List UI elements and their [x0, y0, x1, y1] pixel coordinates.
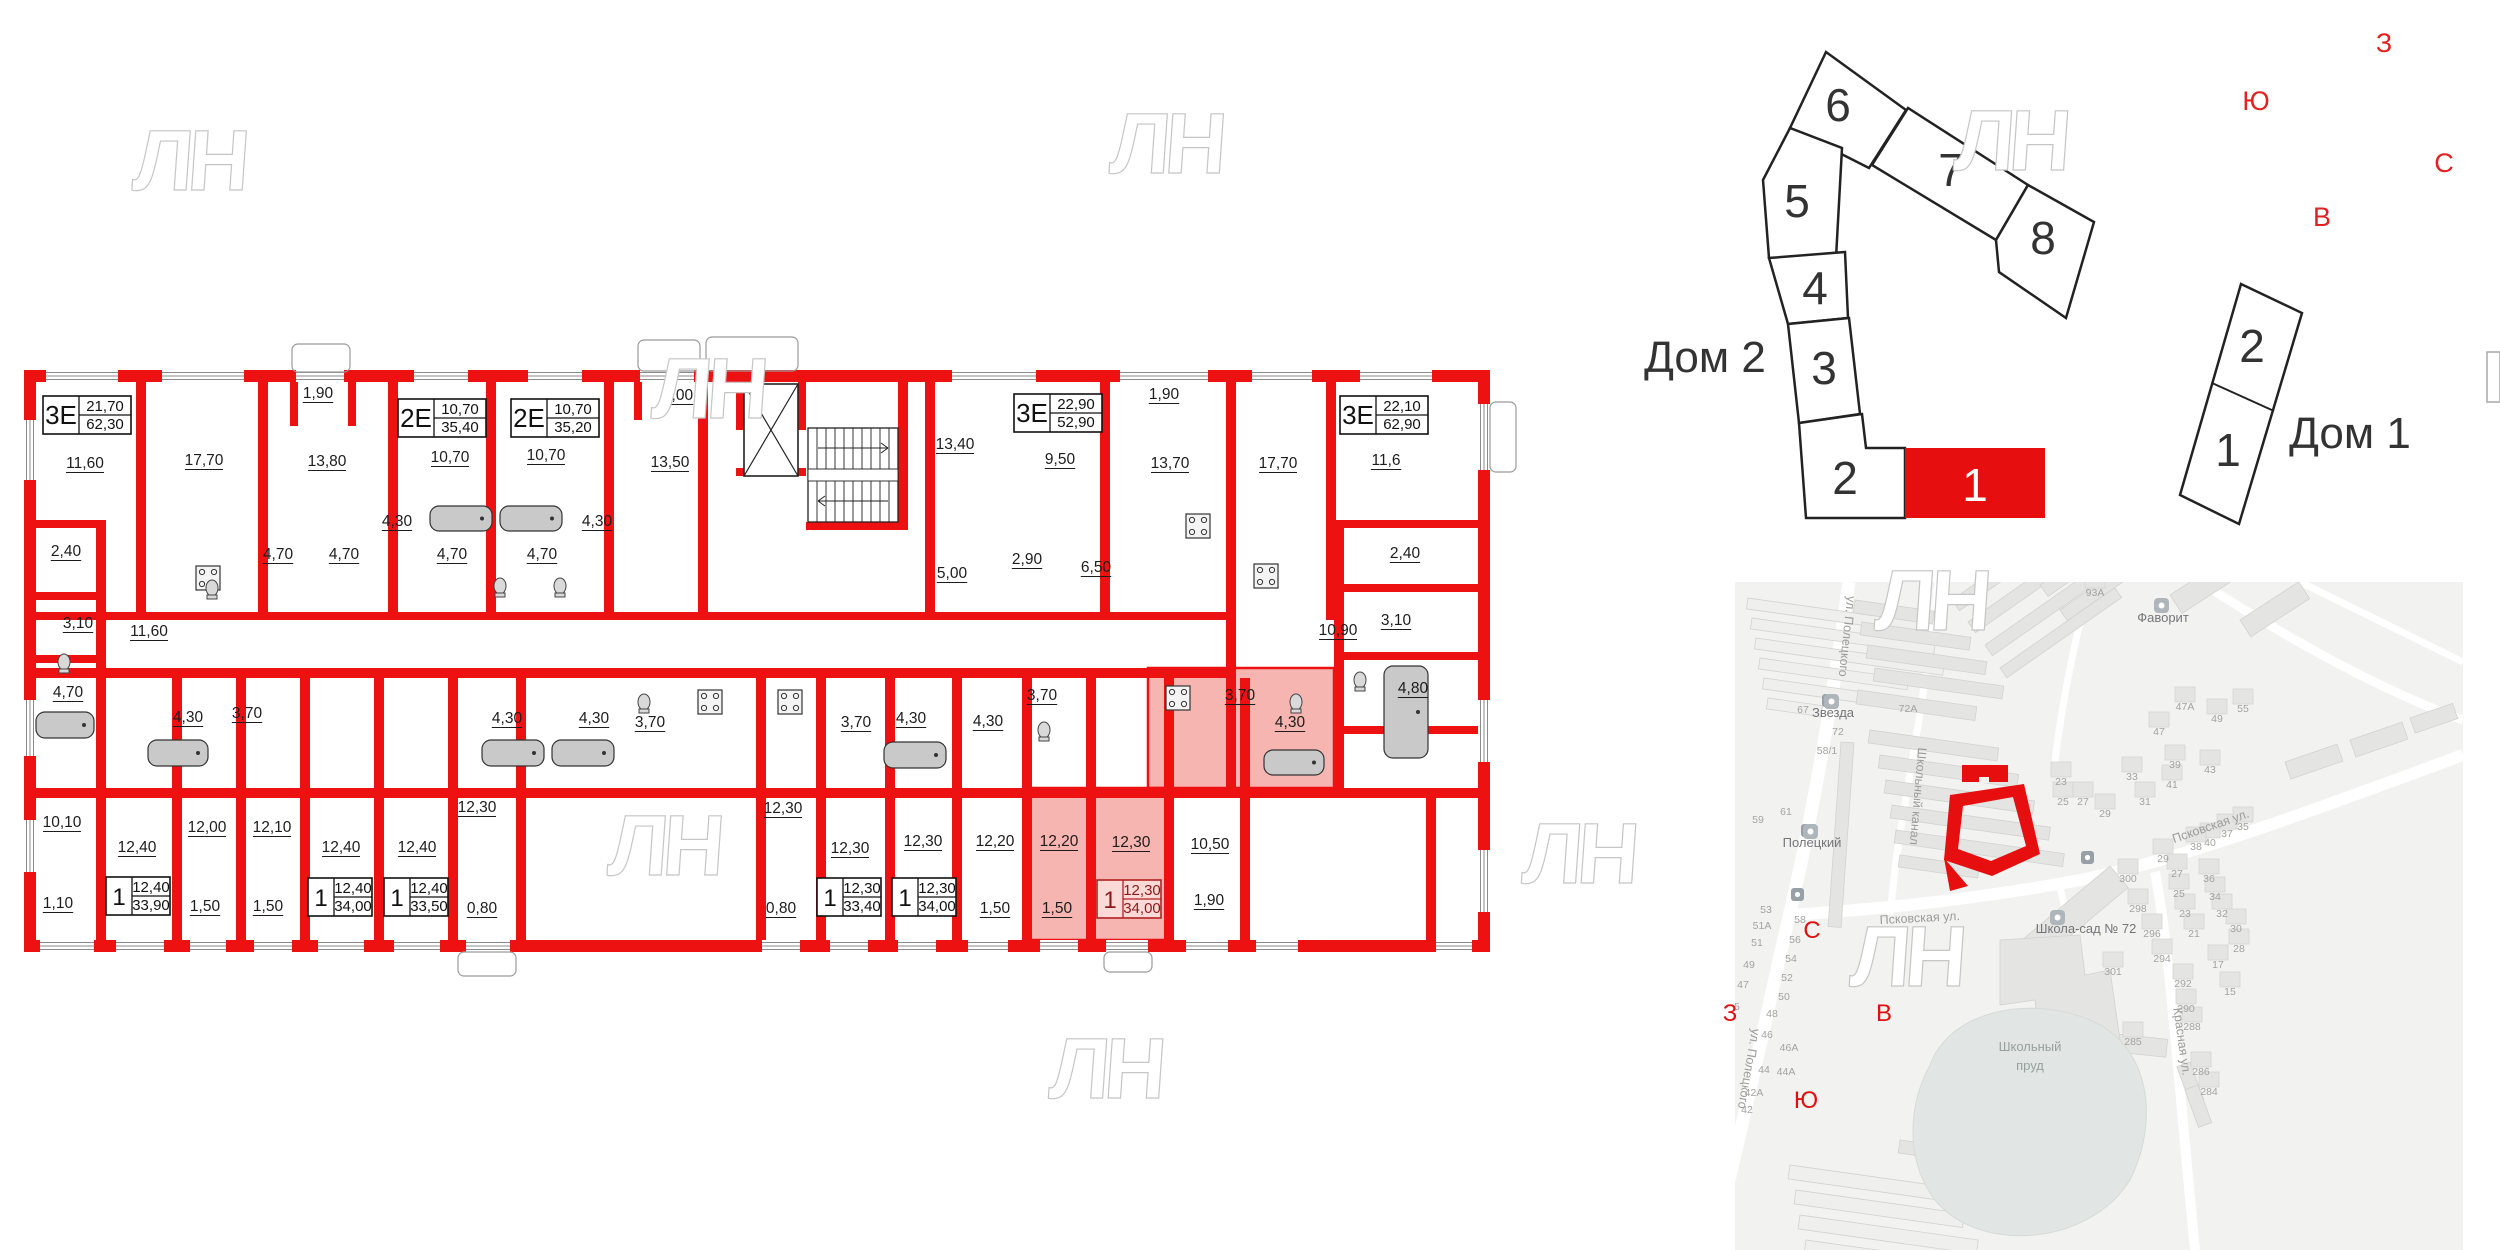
map-building [2051, 762, 2071, 777]
room-area-label: 9,50 [1045, 451, 1076, 468]
room-area-label: 12,40 [322, 839, 361, 856]
stove [1186, 514, 1210, 538]
apartment-info-box[interactable]: 112,3033,40 [817, 878, 881, 916]
apartment-type: 1 [1103, 887, 1116, 914]
house-number: 58/1 [1817, 745, 1838, 757]
house-number: 41 [2166, 779, 2178, 791]
map-building [2128, 889, 2148, 904]
map-building [2173, 964, 2193, 979]
apartment-info-box[interactable]: 3Е21,7062,30 [43, 396, 131, 434]
room-area-label: 17,70 [185, 452, 224, 469]
house-number: 38 [2190, 841, 2202, 853]
house-number: 17 [2212, 959, 2224, 971]
room-area-label: 12,10 [253, 819, 292, 836]
house-number: 21 [2188, 928, 2200, 940]
apartment-room-area: 12,40 [132, 879, 170, 896]
house-number: 292 [2174, 978, 2192, 990]
room-area-label: 4,30 [582, 513, 613, 530]
compass-top-east: В [2313, 202, 2331, 232]
house-number: 93А [2086, 587, 2105, 599]
stove [778, 690, 802, 714]
apartment-type: 3Е [45, 400, 77, 430]
room-area-label: 2,40 [51, 543, 82, 560]
wall [1426, 788, 1436, 950]
wall [898, 372, 908, 530]
compass-top-north: С [2434, 148, 2454, 178]
wall [24, 612, 1236, 620]
map-building [2200, 750, 2220, 765]
developer-watermark: ЛН [605, 798, 723, 894]
apartment-info-box[interactable]: 2Е10,7035,40 [398, 399, 486, 437]
house-number: 28 [2233, 943, 2245, 955]
house-number: 300 [2119, 873, 2137, 885]
compass-map-south: Ю [1794, 1087, 1818, 1114]
house-number: 47А [2176, 701, 2195, 713]
map-building [2191, 1052, 2211, 1067]
room-area-label: 4,80 [1398, 680, 1429, 697]
wall [1342, 520, 1478, 528]
wall [1240, 678, 1250, 948]
apartment-info-box[interactable]: 112,3034,00 [892, 878, 956, 916]
stove [1254, 564, 1278, 588]
house-number: 46А [1780, 1042, 1799, 1054]
map-building [2175, 687, 2195, 702]
house-number: 51 [1751, 937, 1763, 949]
toilet [58, 654, 70, 670]
house-number: 29 [2099, 808, 2111, 820]
developer-watermark: ЛН [1520, 806, 1638, 902]
apartment-room-area: 12,30 [1123, 882, 1161, 899]
wall [96, 520, 106, 676]
apartment-info-box[interactable]: 112,4033,90 [106, 877, 170, 915]
apartment-total-area: 34,00 [1123, 900, 1161, 917]
scheme-block-number[interactable]: 3 [1811, 342, 1837, 394]
house-number: 51А [1753, 920, 1772, 932]
apartment-type: 1 [112, 884, 125, 911]
room-area-label: 1,90 [303, 385, 334, 402]
toilet [1354, 672, 1366, 688]
room-area-label: 3,70 [1027, 687, 1058, 704]
room-area-label: 1,50 [253, 898, 284, 915]
room-area-label: 12,30 [831, 840, 870, 857]
wall [258, 372, 268, 620]
wall [1226, 372, 1236, 620]
apartment-total-area: 33,50 [410, 898, 448, 915]
room-area-label: 5,00 [937, 565, 968, 582]
room-area-label: 4,70 [329, 546, 360, 563]
house-number: 44А [1777, 1066, 1796, 1078]
apartment-room-area: 22,90 [1057, 396, 1095, 413]
map-building [2103, 952, 2123, 967]
room-area-label: 11,6 [1371, 452, 1400, 469]
pond-label-line1: Школьный [1999, 1039, 2062, 1054]
balcony-outline [292, 344, 350, 372]
room-area-label: 4,30 [382, 513, 413, 530]
apartment-room-area: 21,70 [86, 398, 124, 415]
apartment-info-box[interactable]: 3Е22,1062,90 [1340, 396, 1428, 434]
toilet [1290, 694, 1302, 710]
room-area-label: 12,20 [1040, 833, 1079, 850]
house-number: 56 [1789, 934, 1801, 946]
house-number: 25 [2057, 796, 2069, 808]
room-area-label: 11,60 [66, 455, 104, 472]
dom2-label: Дом 2 [1644, 333, 1766, 382]
floor-plan: 11,6017,701,9013,8010,7010,702,0013,5013… [24, 337, 1516, 976]
compass-top-south: Ю [2242, 86, 2269, 116]
apartment-type: 1 [898, 885, 911, 912]
house-number: 290 [2177, 1003, 2195, 1015]
staircase [808, 428, 898, 522]
room-area-label: 4,30 [1275, 714, 1306, 731]
room-area-label: 4,30 [973, 713, 1004, 730]
room-area-label: 3,70 [232, 705, 263, 722]
house-number: 55 [2237, 703, 2249, 715]
room-area-label: 4,70 [437, 546, 468, 563]
wall [925, 372, 935, 620]
map-building [2142, 914, 2162, 929]
map-building [2153, 839, 2173, 854]
poi-label: Полецкий [1783, 835, 1842, 850]
wall [448, 678, 458, 948]
poi-label: Школа-сад № 72 [2036, 921, 2137, 936]
apartment-info-box[interactable]: 3Е22,9052,90 [1014, 394, 1102, 432]
apartment-total-area: 62,90 [1383, 416, 1421, 433]
house-number: 33 [2126, 771, 2138, 783]
wall [1022, 678, 1032, 948]
house-number: 47 [2153, 726, 2165, 738]
house-number: 61 [1780, 806, 1792, 818]
map-building [2122, 757, 2142, 772]
wall [604, 372, 614, 620]
map-building [2085, 573, 2105, 588]
toilet [638, 694, 650, 710]
house-number: 27 [2077, 796, 2089, 808]
map-building [2073, 782, 2093, 797]
map-building [2152, 939, 2172, 954]
house-number: 23 [2055, 776, 2067, 788]
apartment-total-area: 35,20 [554, 419, 592, 436]
room-area-label: 1,50 [980, 900, 1011, 917]
house-number: 285 [2124, 1036, 2142, 1048]
room-area-label: 10,10 [43, 814, 82, 831]
room-area-label: 3,70 [635, 714, 666, 731]
apartment-room-area: 10,70 [554, 401, 592, 418]
room-area-label: 12,30 [764, 800, 803, 817]
house-number: 29 [2157, 853, 2169, 865]
room-area-label: 4,30 [896, 710, 927, 727]
room-area-label: 1,90 [1194, 892, 1225, 909]
house-number: 49 [1743, 959, 1755, 971]
wall [24, 668, 1236, 678]
toilet [206, 580, 218, 596]
map-building [2135, 782, 2155, 797]
wall [798, 372, 806, 430]
house-number: 53 [1760, 904, 1772, 916]
house-number: 39 [2169, 759, 2181, 771]
house-number: 47 [1737, 979, 1749, 991]
room-area-label: 6,50 [1081, 559, 1112, 576]
map-content: ул. ПолецкогоШкольный каналПсковская ул.… [1712, 514, 2463, 1250]
apartment-type: 2Е [400, 403, 432, 433]
room-area-label: 13,40 [936, 436, 975, 453]
wall [24, 592, 104, 600]
developer-watermark: ЛН [649, 341, 767, 437]
apartment-room-area: 12,30 [843, 880, 881, 897]
compass-map-north: С [1803, 917, 1820, 944]
apartment-total-area: 34,00 [334, 898, 372, 915]
room-area-label: 13,80 [308, 453, 347, 470]
minimap: ул. ПолецкогоШкольный каналПсковская ул.… [1712, 514, 2463, 1250]
house-number: 43 [2204, 764, 2216, 776]
wall [136, 372, 146, 620]
compass-top-west: З [2376, 28, 2392, 58]
balcony-outline [458, 952, 516, 976]
house-number: 34 [2209, 891, 2221, 903]
map-building [2226, 909, 2246, 924]
room-area-label: 13,50 [651, 454, 690, 471]
map-building [2176, 989, 2196, 1004]
house-number: 49 [2211, 713, 2223, 725]
house-number: 23 [2179, 908, 2191, 920]
apartment-room-area: 22,10 [1383, 398, 1421, 415]
developer-watermark: ЛН [1848, 909, 1966, 1005]
apartment-type: 3Е [1342, 400, 1374, 430]
apartment-room-area: 12,30 [918, 880, 956, 897]
scheme-block-number[interactable]: 5 [1784, 175, 1810, 227]
apartment-type: 1 [390, 885, 403, 912]
room-area-label: 12,00 [188, 819, 227, 836]
room-area-label: 12,40 [118, 839, 157, 856]
developer-watermark: ЛН [1107, 96, 1225, 192]
wall [1086, 678, 1096, 948]
room-area-label: 17,70 [1259, 455, 1298, 472]
house-number: 284 [2200, 1086, 2218, 1098]
map-building [2095, 794, 2115, 809]
room-area-label: 12,30 [458, 799, 497, 816]
wall [806, 522, 908, 530]
house-number: 35 [2237, 821, 2249, 833]
house-number: 15 [2224, 986, 2236, 998]
map-building [2149, 712, 2169, 727]
wall [374, 678, 384, 948]
room-area-label: 0,80 [766, 900, 797, 917]
house-number: 286 [2192, 1066, 2210, 1078]
scheme-block-number[interactable]: 6 [1825, 79, 1851, 131]
apartment-total-area: 35,40 [441, 419, 479, 436]
house-number: 72А [1899, 703, 1918, 715]
room-area-label: 12,40 [398, 839, 437, 856]
room-area-label: 3,10 [1381, 612, 1412, 629]
house-number: 296 [2143, 928, 2161, 940]
dom1-block-number[interactable]: 2 [2239, 320, 2265, 372]
house-number: 50 [1778, 991, 1790, 1003]
room-area-label: 11,60 [130, 623, 168, 640]
wall [96, 678, 106, 948]
dom1-label: Дом 1 [2289, 409, 2411, 458]
map-building [2165, 745, 2185, 760]
house-number: 44 [1758, 1064, 1770, 1076]
wall [1342, 652, 1478, 660]
room-area-label: 4,30 [579, 710, 610, 727]
house-number: 42А [1745, 1087, 1764, 1099]
apartment-info-box-selected[interactable]: 112,3034,00 [1097, 880, 1161, 918]
developer-watermark: ЛН [1952, 93, 2070, 189]
apartment-room-area: 12,40 [410, 880, 448, 897]
room-area-label: 1,10 [43, 895, 74, 912]
room-area-label: 10,50 [1191, 836, 1230, 853]
developer-watermark: ЛН [1872, 553, 1990, 649]
apartment-info-box[interactable]: 2Е10,7035,20 [511, 399, 599, 437]
dom1-block-number[interactable]: 1 [2215, 424, 2241, 476]
room-area-label: 10,90 [1319, 622, 1358, 639]
house-number: 54 [1785, 953, 1797, 965]
room-area-label: 12,30 [904, 833, 943, 850]
apartment-type: 1 [823, 885, 836, 912]
map-building [2208, 945, 2228, 960]
map-building [2207, 699, 2227, 714]
toilet [554, 578, 566, 594]
house-number: 59 [1752, 814, 1764, 826]
toilet [494, 578, 506, 594]
house-number: 298 [2129, 903, 2147, 915]
room-area-label: 1,50 [190, 898, 221, 915]
room-area-label: 4,70 [263, 546, 294, 563]
room-area-label: 2,90 [1012, 551, 1043, 568]
scheme-block-number[interactable]: 4 [1802, 262, 1828, 314]
house-number: 31 [2139, 796, 2151, 808]
scheme-block-number[interactable]: 8 [2030, 212, 2056, 264]
apartment-total-area: 52,90 [1057, 414, 1095, 431]
room-area-label: 3,70 [1225, 687, 1256, 704]
balcony-outline [1104, 952, 1152, 972]
scheme-block-number[interactable]: 1 [1962, 459, 1988, 511]
house-number: 67 [1797, 704, 1809, 716]
apartment-room-area: 12,40 [334, 880, 372, 897]
house-number: 288 [2183, 1021, 2201, 1033]
house-number: 46 [1761, 1029, 1773, 1041]
house-number: 301 [2104, 966, 2122, 978]
room-area-label: 3,10 [63, 615, 94, 632]
stove [1166, 686, 1190, 710]
apartment-total-area: 33,90 [132, 897, 170, 914]
wall [348, 372, 356, 426]
map-building [2220, 972, 2240, 987]
apartment-type: 2Е [513, 403, 545, 433]
room-area-label: 1,50 [1042, 900, 1073, 917]
room-area-label: 12,30 [1112, 834, 1151, 851]
map-building [2233, 689, 2253, 704]
wall [1342, 584, 1478, 592]
scene-canvas: ул. ПолецкогоШкольный каналПсковская ул.… [0, 0, 2500, 1250]
pond-label-line2: пруд [2016, 1058, 2044, 1073]
house-number: 30 [2230, 923, 2242, 935]
map-building [2123, 1022, 2143, 1037]
wall [1164, 678, 1174, 948]
room-area-label: 4,70 [53, 684, 84, 701]
house-number: 27 [2171, 868, 2183, 880]
compass-star [2280, 41, 2425, 196]
apartment-type: 3Е [1016, 398, 1048, 428]
map-building [2118, 859, 2138, 874]
house-number: 36 [2203, 873, 2215, 885]
room-area-label: 4,30 [173, 709, 204, 726]
balcony-outline [1490, 402, 1516, 472]
room-area-label: 4,70 [527, 546, 558, 563]
scheme-block-number[interactable]: 2 [1832, 452, 1858, 504]
compass-map-west: З [1723, 1000, 1738, 1027]
floorplan-page: ул. ПолецкогоШкольный каналПсковская ул.… [0, 0, 2500, 1250]
poi-label: Фаворит [2137, 610, 2189, 625]
poi-label: Звезда [1812, 705, 1855, 720]
room-area-label: 10,70 [527, 447, 566, 464]
room-area-label: 10,70 [431, 449, 470, 466]
house-number: 294 [2153, 953, 2171, 965]
apartment-info-box[interactable]: 112,4034,00 [308, 878, 372, 916]
apartment-total-area: 62,30 [86, 416, 124, 433]
room-area-label: 4,30 [492, 710, 523, 727]
house-number: 42 [1741, 1104, 1753, 1116]
developer-watermark: ЛН [1047, 1021, 1165, 1117]
house-number: 32 [2216, 908, 2228, 920]
room-area-label: 0,80 [467, 900, 498, 917]
room-area-label: 3,70 [841, 714, 872, 731]
developer-watermark: ЛН [130, 113, 248, 209]
apartment-total-area: 34,00 [918, 898, 956, 915]
house-number: 40 [2204, 837, 2216, 849]
room-area-label: 2,40 [1390, 545, 1421, 562]
room-area-label: 1,90 [1149, 386, 1180, 403]
room-area-label: 12,20 [976, 833, 1015, 850]
room-area-label: 13,70 [1151, 455, 1190, 472]
apartment-info-box[interactable]: 112,4033,50 [384, 878, 448, 916]
stove [698, 690, 722, 714]
house-number: 37 [2221, 828, 2233, 840]
wall [388, 372, 398, 620]
house-number: 48 [1766, 1008, 1778, 1020]
wall [24, 520, 104, 528]
apartment-total-area: 33,40 [843, 898, 881, 915]
cropped-edge-widget[interactable] [2487, 352, 2500, 402]
toilet [1038, 722, 1050, 738]
map-building [2199, 859, 2219, 874]
house-number: 25 [2173, 888, 2185, 900]
house-number: 52 [1781, 972, 1793, 984]
apartment-room-area: 10,70 [441, 401, 479, 418]
map-building [2167, 854, 2187, 869]
apartment-type: 1 [314, 885, 327, 912]
house-number: 72 [1832, 726, 1844, 738]
